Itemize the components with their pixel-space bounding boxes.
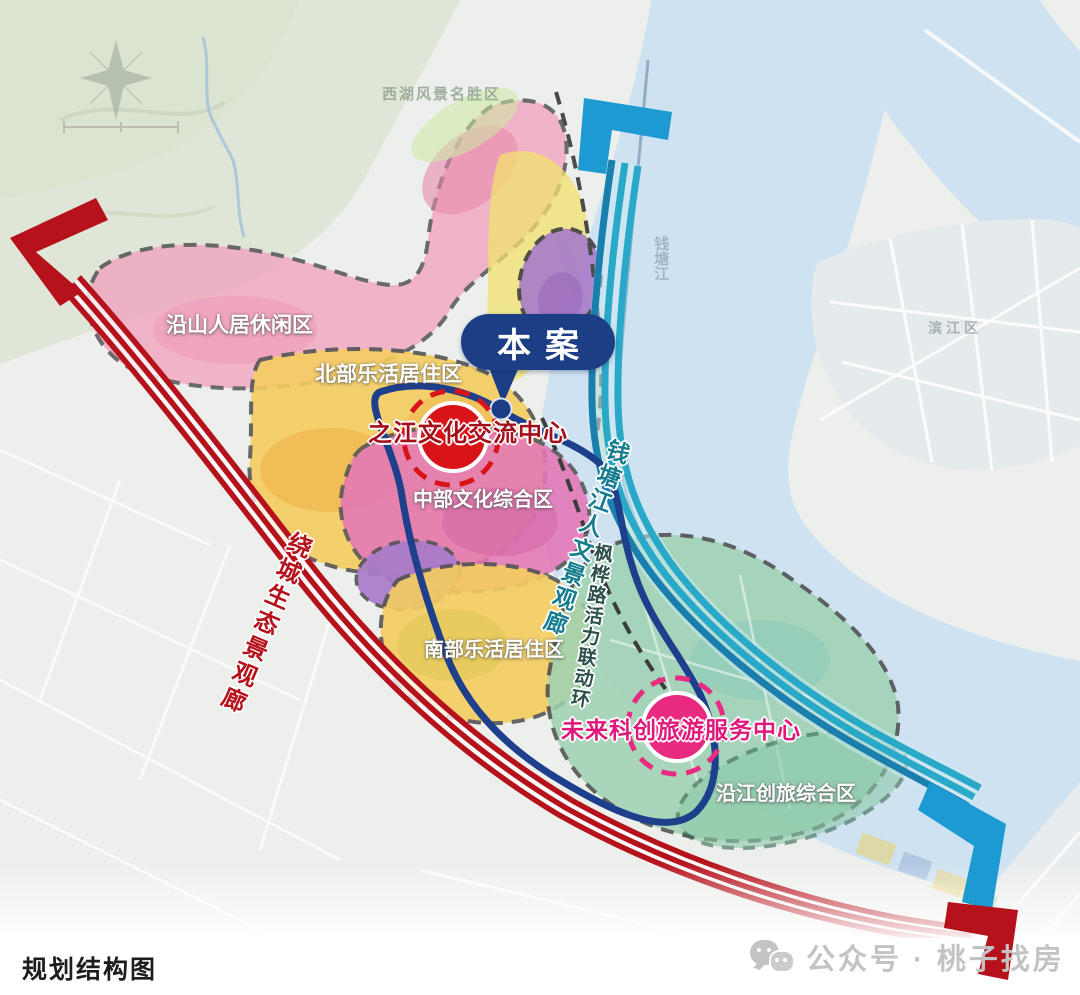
wechat-icon: [750, 938, 796, 976]
map-caption: 规划结构图: [22, 950, 157, 986]
center-label-weilai: 未来科创旅游服务中心: [561, 717, 801, 743]
zone-label-yanshan: 沿山人居休闲区: [166, 314, 313, 338]
center-label-zhijiang: 之江文化交流中心: [368, 420, 568, 448]
zone-label-beibu: 北部乐活居住区: [315, 363, 462, 387]
site-callout-bubble: 本案: [461, 314, 615, 370]
site-dot: [491, 399, 512, 420]
watermark: 公众号 · 桃子找房: [750, 936, 1065, 978]
site-callout-label: 本案: [483, 318, 593, 367]
context-label-binjiang: 滨江区: [928, 320, 982, 336]
context-label-qiantangjiang: 钱塘江: [652, 236, 669, 281]
zone-label-zhongbu: 中部文化综合区: [413, 489, 553, 512]
context-label-xihu: 西湖风景名胜区: [382, 86, 501, 103]
planning-structure-map: 沿山人居休闲区 北部乐活居住区 之江文化交流中心 中部文化综合区 南部乐活居住区…: [0, 0, 1080, 995]
zone-label-yanjiang: 沿江创旅综合区: [716, 783, 856, 806]
bottom-fade: [0, 862, 1080, 940]
zone-label-nanbu: 南部乐活居住区: [424, 639, 564, 662]
watermark-text: 公众号 · 桃子找房: [806, 936, 1065, 978]
